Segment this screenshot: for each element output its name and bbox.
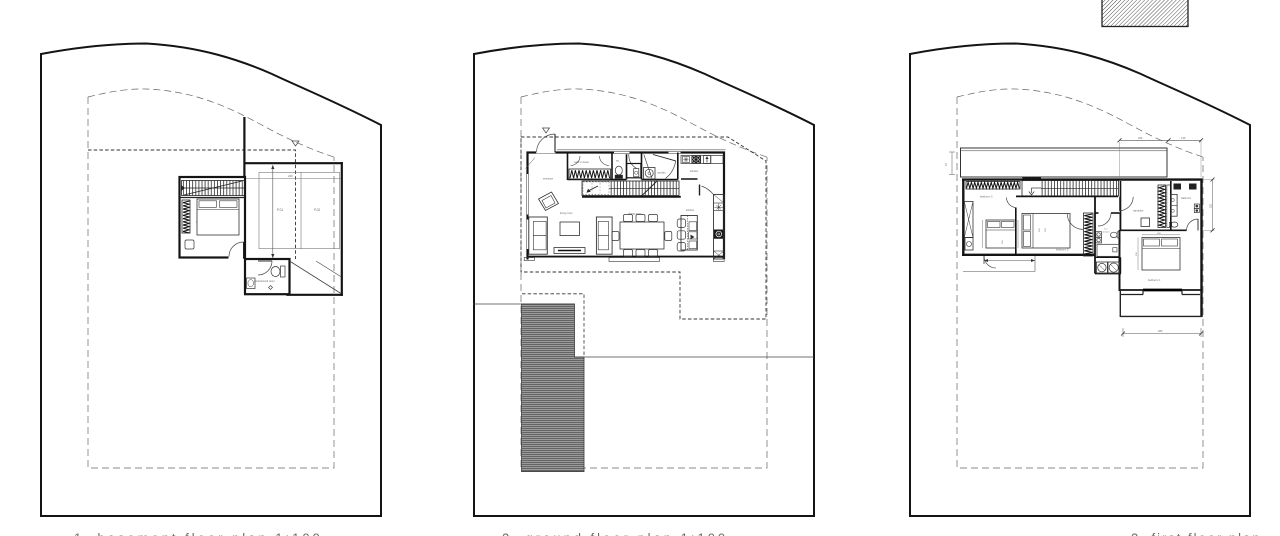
svg-text:wc: wc	[616, 160, 620, 163]
svg-text:290: 290	[1138, 136, 1143, 140]
svg-text:3. first floor plan: 3. first floor plan	[1131, 530, 1262, 536]
svg-text:P.01: P.01	[277, 208, 283, 212]
svg-text:wc /: wc /	[1104, 228, 1108, 230]
svg-text:130: 130	[1181, 136, 1186, 140]
svg-text:P.02: P.02	[314, 208, 320, 212]
svg-text:240: 240	[288, 174, 293, 178]
svg-text:160: 160	[1039, 228, 1041, 232]
svg-text:bedroom 3: bedroom 3	[980, 195, 993, 199]
svg-text:2. ground floor plan 1:100: 2. ground floor plan 1:100	[502, 531, 728, 536]
svg-text:entrance: entrance	[543, 177, 554, 181]
svg-text:bathroom: bathroom	[1181, 197, 1191, 200]
svg-text:living room: living room	[560, 211, 573, 215]
svg-text:40: 40	[945, 163, 948, 166]
svg-text:dining room: dining room	[628, 212, 642, 216]
svg-text:wardrobe: wardrobe	[1133, 210, 1144, 213]
svg-text:1. basement floor plan 1:100: 1. basement floor plan 1:100	[74, 530, 323, 536]
svg-text:kitchen: kitchen	[690, 169, 699, 173]
svg-text:wc/technical room: wc/technical room	[254, 279, 275, 283]
svg-text:bedroom 1: bedroom 1	[1148, 278, 1161, 282]
svg-text:shower: shower	[1103, 231, 1110, 234]
svg-text:320: 320	[1209, 203, 1212, 208]
svg-text:480: 480	[1158, 329, 1163, 333]
svg-text:kitchen: kitchen	[686, 208, 695, 212]
svg-text:200: 200	[1045, 228, 1047, 232]
svg-text:200: 200	[1002, 240, 1004, 244]
svg-text:200: 200	[1136, 252, 1138, 256]
svg-text:laundry: laundry	[658, 172, 667, 175]
